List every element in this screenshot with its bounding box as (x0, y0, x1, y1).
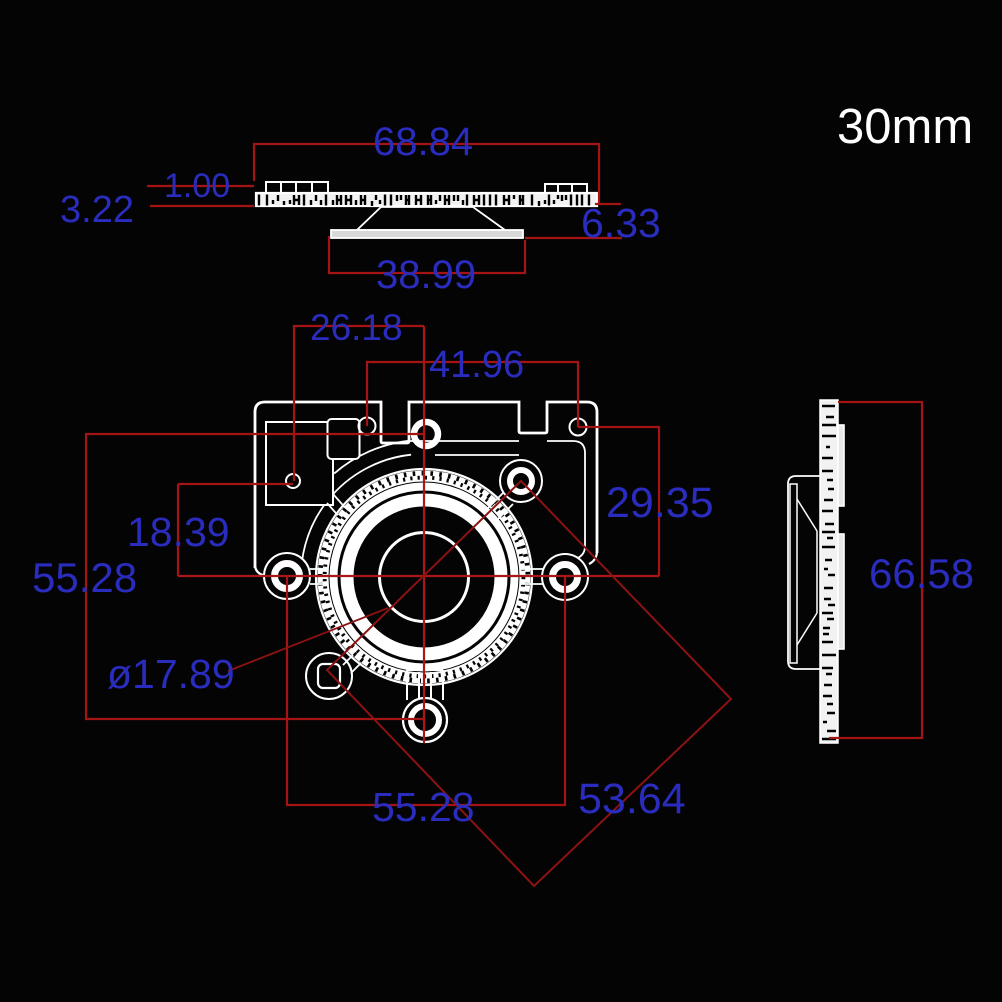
svg-text:53.64: 53.64 (578, 775, 686, 823)
svg-text:66.58: 66.58 (869, 550, 974, 597)
svg-text:55.28: 55.28 (372, 784, 475, 830)
svg-text:68.84: 68.84 (373, 120, 473, 164)
svg-text:30mm: 30mm (837, 100, 973, 154)
svg-text:41.96: 41.96 (429, 344, 524, 386)
svg-text:1.00: 1.00 (164, 167, 230, 205)
svg-text:26.18: 26.18 (310, 307, 403, 348)
svg-text:18.39: 18.39 (127, 509, 230, 555)
svg-text:29.35: 29.35 (606, 479, 714, 527)
svg-text:38.99: 38.99 (376, 253, 476, 297)
svg-text:55.28: 55.28 (32, 554, 137, 601)
svg-text:6.33: 6.33 (581, 200, 661, 246)
svg-text:ø17.89: ø17.89 (107, 651, 235, 697)
svg-text:3.22: 3.22 (60, 189, 134, 231)
